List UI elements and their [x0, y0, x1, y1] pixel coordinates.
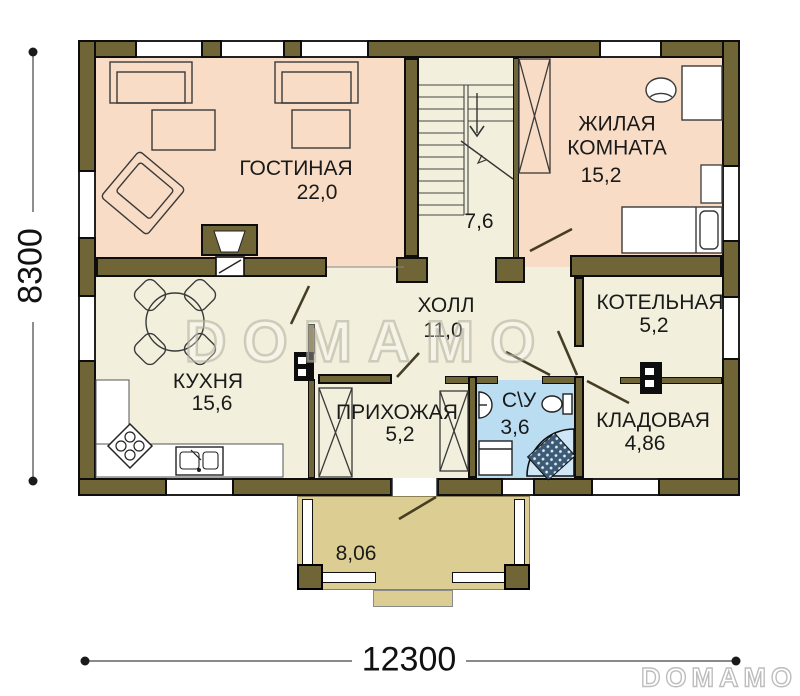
bedroom-label: ЖИЛАЯ КОМНАТА — [527, 112, 707, 159]
boiler-room-area: 5,2 — [639, 314, 668, 338]
boiler-room-label: КОТЕЛЬНАЯ — [596, 291, 723, 315]
window-living-top-1 — [137, 40, 201, 58]
wall-bottom-2 — [232, 478, 392, 496]
living-room-label: ГОСТИНАЯ — [239, 157, 352, 181]
wall-top-pier-1 — [201, 40, 222, 58]
window-bedroom-right — [722, 167, 740, 240]
porch-post-right — [504, 564, 530, 590]
wall-stair-jamb-left — [396, 257, 428, 283]
porch-step — [373, 590, 453, 607]
wall-top-pier-2 — [283, 40, 302, 58]
wall-left-middle — [78, 237, 96, 297]
wall-stair-left — [404, 58, 419, 257]
wall-left-upper — [78, 40, 96, 172]
wall-bathroom-storage — [574, 376, 584, 478]
storage-area: 4,86 — [625, 432, 666, 456]
window-kitchen-left — [78, 297, 96, 360]
porch-railing-bottom-right — [452, 572, 505, 583]
wall-right-middle — [722, 240, 740, 298]
wall-bottom-4 — [533, 478, 593, 496]
wall-right-upper — [722, 40, 740, 167]
window-living-top-3 — [302, 40, 367, 58]
bathroom-label: С\У — [502, 389, 536, 413]
wall-hall-boiler — [574, 277, 584, 347]
wall-bottom-3 — [437, 478, 503, 496]
wall-boiler-storage — [620, 377, 722, 384]
wall-top-center — [367, 40, 601, 58]
window-bathroom-bottom — [503, 478, 533, 496]
wall-left-lower — [78, 360, 96, 496]
living-room-area: 22,0 — [297, 181, 338, 205]
bedroom-area: 15,2 — [581, 164, 622, 188]
porch-railing-bottom-left — [322, 572, 376, 583]
wall-living-kitchen — [96, 257, 327, 277]
wall-bedroom-bottom — [570, 255, 722, 277]
porch-post-left — [297, 564, 323, 590]
wall-bottom-5 — [658, 478, 740, 496]
stairwell-floor — [404, 58, 519, 283]
wall-right-lower — [722, 358, 740, 496]
window-living-top-2 — [222, 40, 283, 58]
wall-hall-entry — [318, 374, 392, 384]
window-boiler-right — [722, 298, 740, 358]
brand-logo: DOMAMO — [641, 663, 797, 694]
window-bedroom-top — [601, 40, 660, 58]
entry-label: ПРИХОЖАЯ — [336, 401, 458, 425]
dimension-height: 8300 — [12, 220, 51, 312]
storage-label: КЛАДОВАЯ — [596, 409, 710, 433]
bathroom-area: 3,6 — [500, 416, 529, 440]
porch-railing-left — [302, 499, 313, 567]
wall-stair-bedroom — [513, 58, 519, 258]
entry-area: 5,2 — [385, 423, 414, 447]
watermark: DOMAMO — [185, 309, 552, 376]
stairwell-area: 7,6 — [464, 210, 493, 234]
dimension-width: 12300 — [354, 641, 465, 680]
wall-entry-bathroom — [468, 376, 477, 478]
window-kitchen-bottom — [167, 478, 232, 496]
window-storage-bottom — [593, 478, 658, 496]
wall-kitchen-entry — [308, 379, 315, 478]
wall-bottom-1 — [78, 478, 167, 496]
floor-plan: ГОСТИНАЯ 22,0 7,6 ЖИЛАЯ КОМНАТА 15,2 ХОЛ… — [0, 0, 800, 696]
porch-area: 8,06 — [336, 542, 377, 566]
window-living-left — [78, 172, 96, 237]
kitchen-area: 15,6 — [192, 392, 233, 416]
porch-door-jambs — [392, 478, 437, 496]
porch-railing-right — [514, 499, 525, 567]
wall-stair-jamb-right — [495, 257, 525, 283]
